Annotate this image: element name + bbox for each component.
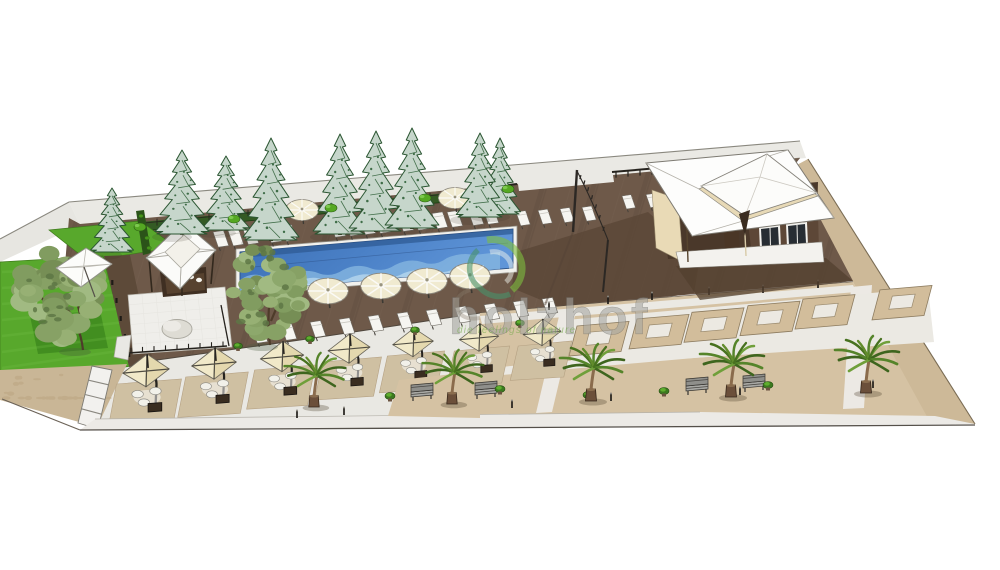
svg-text:die feelings of nature: die feelings of nature [457, 325, 576, 336]
